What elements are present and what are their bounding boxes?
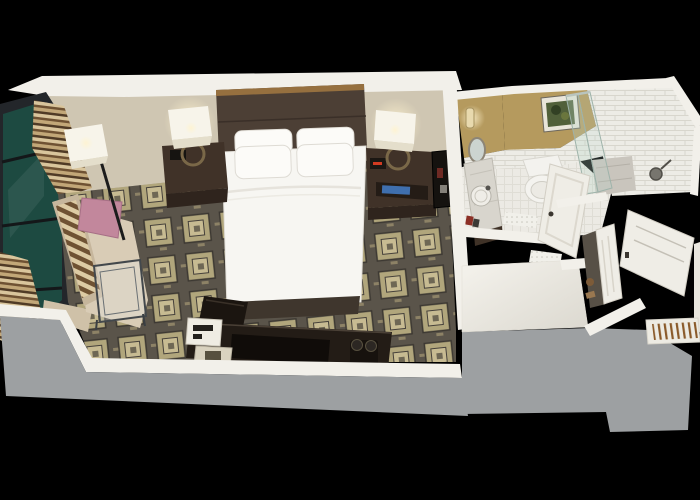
stored-item bbox=[586, 278, 594, 286]
appliance-slot bbox=[193, 325, 213, 331]
pillow-front-left bbox=[234, 145, 291, 179]
left-lamp-bulb-glow bbox=[185, 122, 197, 134]
double-bed bbox=[216, 84, 367, 320]
art-fleck-red bbox=[437, 168, 443, 178]
right-lamp-bulb-glow bbox=[389, 124, 401, 136]
room-render bbox=[0, 0, 700, 500]
entry-block-top bbox=[462, 260, 588, 332]
pillow-front-right bbox=[296, 143, 353, 177]
hotel-room-floorplan-image bbox=[0, 0, 700, 500]
faucet bbox=[486, 186, 491, 191]
magazine bbox=[382, 185, 410, 194]
coffee-cup bbox=[352, 340, 363, 351]
clock-digits bbox=[373, 162, 382, 165]
art-fleck-white bbox=[440, 185, 447, 193]
large-door-handle bbox=[625, 252, 629, 258]
coffee-table-leg bbox=[96, 320, 97, 330]
round-mirror bbox=[469, 138, 485, 162]
door-handle bbox=[549, 212, 554, 217]
appliance-slot-small bbox=[193, 334, 202, 339]
shower-head bbox=[650, 168, 662, 180]
luggage-rack-slats bbox=[652, 322, 698, 340]
wall-sconce-light bbox=[466, 108, 474, 128]
tray-contents bbox=[205, 351, 221, 360]
art-detail bbox=[561, 112, 569, 120]
left-nightstand-top bbox=[162, 142, 228, 194]
art-detail bbox=[551, 105, 561, 115]
coffee-cup bbox=[366, 341, 377, 352]
white-appliance bbox=[186, 318, 222, 346]
floor-lamp-bulb-glow bbox=[79, 136, 93, 150]
